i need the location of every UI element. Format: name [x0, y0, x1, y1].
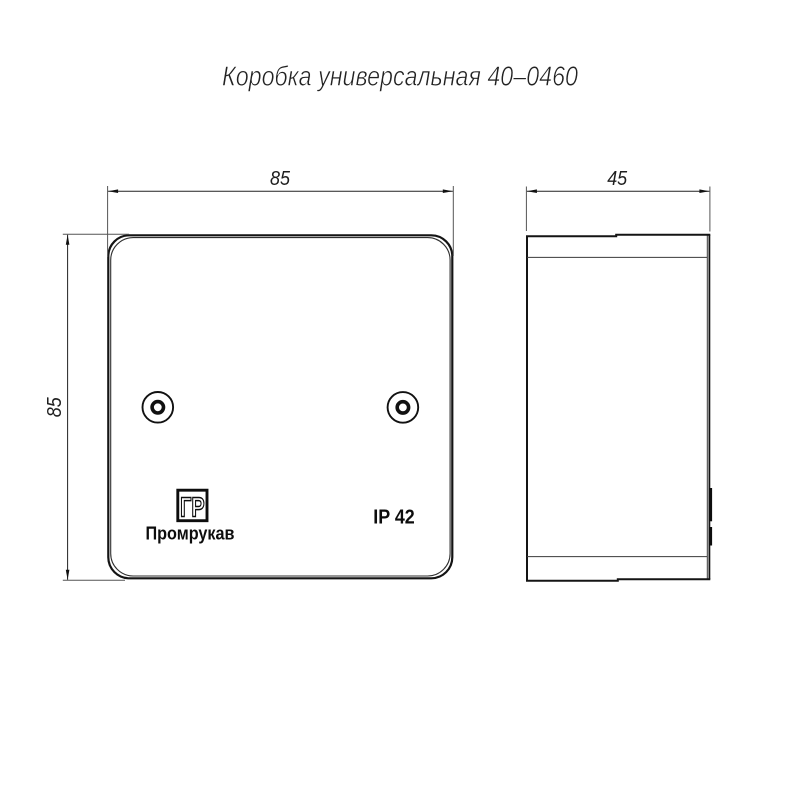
svg-text:45: 45	[607, 168, 628, 190]
svg-text:ГР: ГР	[180, 492, 205, 523]
svg-text:Коробка универсальная 40–0460: Коробка универсальная 40–0460	[222, 61, 579, 92]
svg-text:IP 42: IP 42	[373, 506, 415, 528]
svg-text:85: 85	[270, 168, 291, 190]
svg-text:85: 85	[44, 397, 66, 418]
svg-text:Промрукав: Промрукав	[146, 524, 235, 544]
